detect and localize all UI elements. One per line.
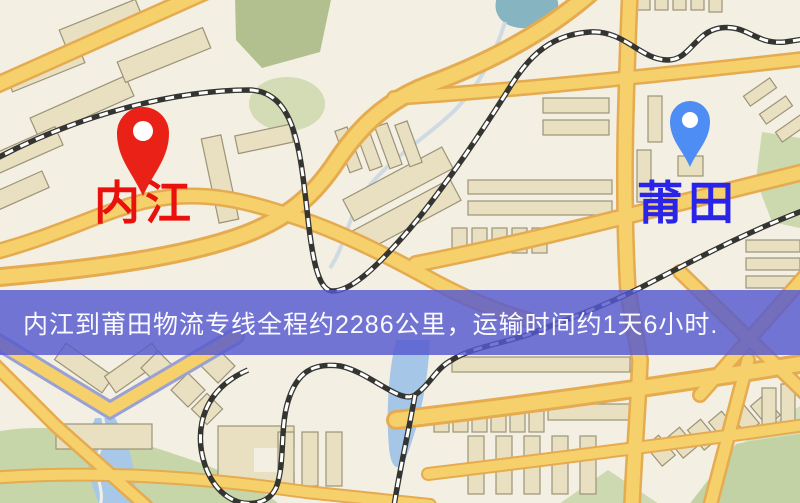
- origin-city-label: 内江: [94, 180, 196, 226]
- origin-pin-hole: [133, 121, 153, 141]
- destination-city-label: 莆田: [637, 180, 739, 226]
- destination-pin-hole: [682, 112, 698, 128]
- route-info-banner: 内江到莆田物流专线全程约2286公里，运输时间约1天6小时.: [0, 290, 800, 355]
- map-canvas: [0, 0, 800, 503]
- route-info-text: 内江到莆田物流专线全程约2286公里，运输时间约1天6小时.: [0, 305, 718, 341]
- map-screenshot: 内江 莆田 内江到莆田物流专线全程约2286公里，运输时间约1天6小时.: [0, 0, 800, 503]
